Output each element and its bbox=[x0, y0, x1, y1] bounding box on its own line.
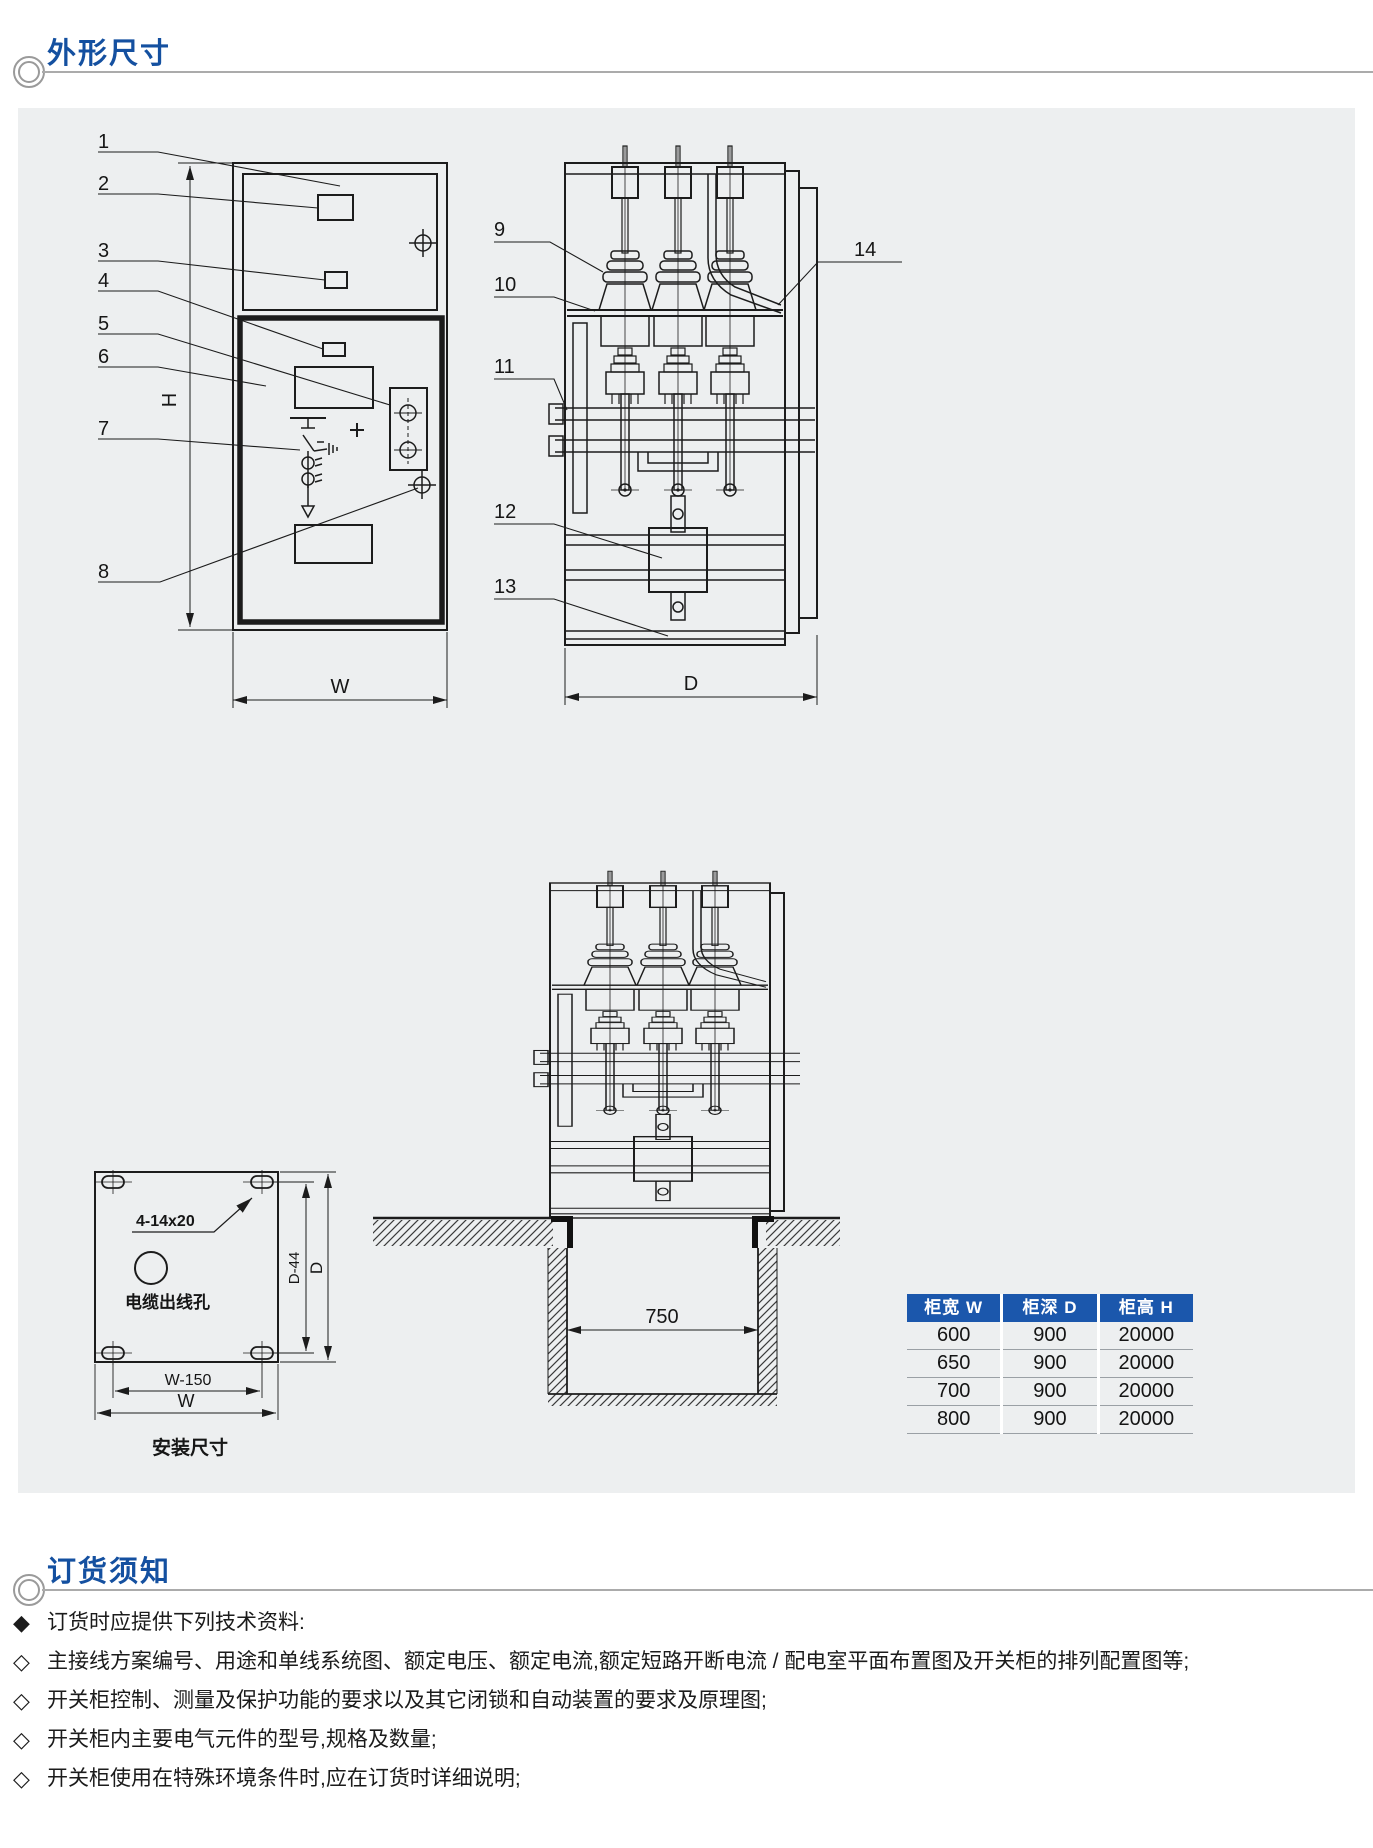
hollow-diamond-icon: ◇ bbox=[13, 1642, 47, 1681]
callout-4: 4 bbox=[98, 270, 109, 292]
cabinet-section-small bbox=[534, 871, 800, 1218]
drawing-panel: 1 2 3 4 5 6 7 8 H W 9 10 11 12 13 14 bbox=[18, 108, 1355, 1493]
section-rule bbox=[42, 71, 1373, 73]
ordering-notes: ◆ 订货时应提供下列技术资料: ◇ 主接线方案编号、用途和单线系统图、额定电压、… bbox=[13, 1603, 1365, 1798]
screw-bottom bbox=[408, 471, 436, 499]
cabinet-outline bbox=[233, 163, 447, 630]
note-item-text: 主接线方案编号、用途和单线系统图、额定电压、额定电流,额定短路开断电流 / 配电… bbox=[47, 1642, 1189, 1681]
circuit-symbol bbox=[290, 418, 337, 517]
table-header-width: 柜宽 W bbox=[907, 1294, 1000, 1322]
section-title-ordering: 订货须知 bbox=[47, 1548, 171, 1590]
dimension-table: 柜宽 W 柜深 D 柜高 H 600 900 20000 650 900 200… bbox=[907, 1294, 1193, 1434]
installation-caption: 安装尺寸 bbox=[152, 1436, 228, 1459]
note-lead-line: ◆ 订货时应提供下列技术资料: bbox=[13, 1603, 1365, 1642]
callout-7: 7 bbox=[98, 418, 109, 440]
screw-top bbox=[409, 229, 437, 257]
dim-d-label: D bbox=[307, 1262, 326, 1274]
side-view-labels: 9 10 11 12 13 14 D bbox=[494, 219, 876, 695]
section-rule bbox=[42, 1589, 1373, 1591]
dim-d44-label: D-44 bbox=[286, 1252, 303, 1285]
foundation-view-drawing bbox=[373, 871, 840, 1406]
dim-depth-label: D bbox=[684, 673, 698, 695]
drawings-canvas: 1 2 3 4 5 6 7 8 H W 9 10 11 12 13 14 bbox=[18, 108, 1355, 1493]
table-header-height: 柜高 H bbox=[1100, 1294, 1193, 1322]
callout-8: 8 bbox=[98, 561, 109, 583]
callout-14: 14 bbox=[854, 239, 876, 261]
callout-1: 1 bbox=[98, 131, 109, 153]
callout-13: 13 bbox=[494, 576, 516, 598]
note-item: ◇ 开关柜控制、测量及保护功能的要求以及其它闭锁和自动装置的要求及原理图; bbox=[13, 1681, 1365, 1720]
table-cell: 900 bbox=[1003, 1378, 1096, 1406]
note-item: ◇ 开关柜使用在特殊环境条件时,应在订货时详细说明; bbox=[13, 1759, 1365, 1798]
section-title-outline: 外形尺寸 bbox=[47, 30, 171, 72]
table-cell: 700 bbox=[907, 1378, 1000, 1406]
note-lead-text: 订货时应提供下列技术资料: bbox=[47, 1603, 305, 1642]
operation-panel bbox=[390, 388, 427, 470]
mounting-plate bbox=[95, 1172, 278, 1362]
section-ring-icon bbox=[13, 56, 45, 88]
callout-12: 12 bbox=[494, 501, 516, 523]
filled-diamond-icon: ◆ bbox=[13, 1603, 47, 1642]
table-cell: 600 bbox=[907, 1322, 1000, 1350]
note-item: ◇ 主接线方案编号、用途和单线系统图、额定电压、额定电流,额定短路开断电流 / … bbox=[13, 1642, 1365, 1681]
hollow-diamond-icon: ◇ bbox=[13, 1681, 47, 1720]
front-view-labels: 1 2 3 4 5 6 7 8 H W bbox=[98, 131, 350, 698]
dim-w-label: W bbox=[178, 1391, 195, 1411]
cabinet-section bbox=[549, 146, 815, 645]
callout-11: 11 bbox=[494, 356, 515, 378]
callout-2: 2 bbox=[98, 173, 109, 195]
cable-outlet-hole bbox=[135, 1252, 167, 1284]
table-cell: 900 bbox=[1003, 1350, 1096, 1378]
table-cell: 20000 bbox=[1100, 1322, 1193, 1350]
callout-6: 6 bbox=[98, 346, 109, 368]
side-view-drawing bbox=[494, 146, 902, 705]
trench-width-label: 750 bbox=[645, 1306, 678, 1328]
note-item: ◇ 开关柜内主要电气元件的型号,规格及数量; bbox=[13, 1720, 1365, 1759]
note-item-text: 开关柜控制、测量及保护功能的要求以及其它闭锁和自动装置的要求及原理图; bbox=[47, 1681, 767, 1720]
table-cell: 20000 bbox=[1100, 1406, 1193, 1434]
dim-width-label: W bbox=[331, 676, 350, 698]
dim-height-label: H bbox=[159, 393, 181, 407]
callout-3: 3 bbox=[98, 240, 109, 262]
front-view-drawing bbox=[98, 152, 447, 708]
section-ring-icon bbox=[13, 1574, 45, 1606]
table-cell: 20000 bbox=[1100, 1378, 1193, 1406]
callout-5: 5 bbox=[98, 313, 109, 335]
mounting-slot bbox=[94, 1170, 132, 1194]
note-item-text: 开关柜使用在特殊环境条件时,应在订货时详细说明; bbox=[47, 1759, 521, 1798]
note-item-text: 开关柜内主要电气元件的型号,规格及数量; bbox=[47, 1720, 437, 1759]
callout-9: 9 bbox=[494, 219, 505, 241]
table-cell: 900 bbox=[1003, 1322, 1096, 1350]
table-cell: 650 bbox=[907, 1350, 1000, 1378]
side-callout-leaders bbox=[494, 242, 902, 636]
hollow-diamond-icon: ◇ bbox=[13, 1759, 47, 1798]
dim-w150-label: W-150 bbox=[165, 1372, 212, 1389]
callout-10: 10 bbox=[494, 274, 516, 296]
table-header-depth: 柜深 D bbox=[1003, 1294, 1096, 1322]
section-header-outline: 外形尺寸 bbox=[0, 30, 1373, 110]
cable-hole-label: 电缆出线孔 bbox=[125, 1292, 210, 1312]
table-cell: 800 bbox=[907, 1406, 1000, 1434]
hole-spec-label: 4-14x20 bbox=[136, 1213, 195, 1230]
installation-labels: 4-14x20 电缆出线孔 D-44 D W-150 W 安装尺寸 bbox=[125, 1213, 326, 1459]
table-cell: 20000 bbox=[1100, 1350, 1193, 1378]
table-cell: 900 bbox=[1003, 1406, 1096, 1434]
hollow-diamond-icon: ◇ bbox=[13, 1720, 47, 1759]
